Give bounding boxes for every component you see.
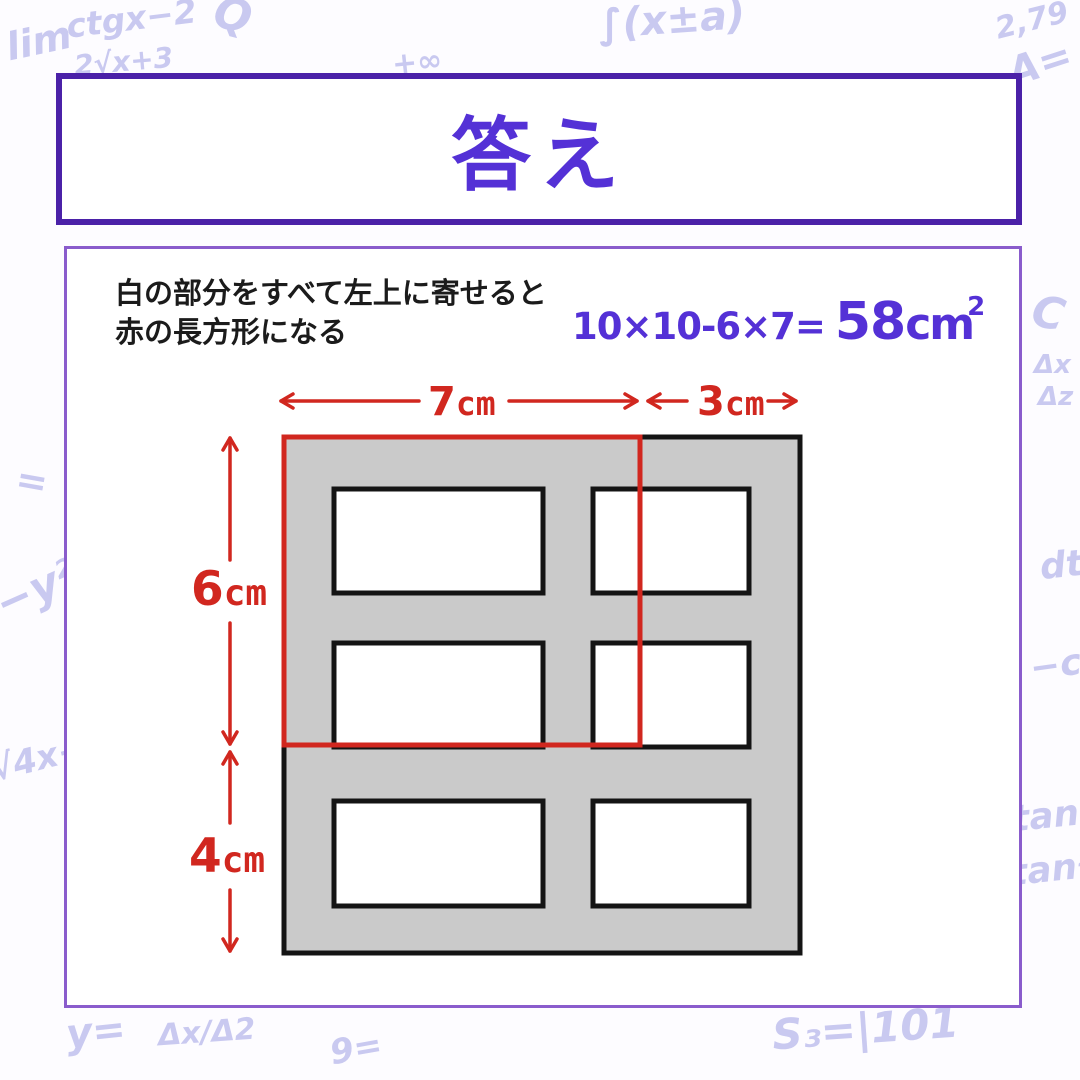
background-scribble: = <box>13 460 51 503</box>
background-scribble: S₃=|101 <box>771 1002 960 1057</box>
formula-expression: 10×10-6×7= <box>572 305 825 348</box>
background-scribble: Δx <box>1034 352 1071 378</box>
dim-label-4cm: 4cm <box>189 829 265 884</box>
dim-label-7cm: 7cm <box>428 379 496 425</box>
explanation-line-2: 赤の長方形になる <box>115 313 547 352</box>
background-scribble: Q <box>209 0 256 42</box>
formula: 10×10-6×7= 58 cm 2 <box>572 292 985 352</box>
explanation-line-1: 白の部分をすべて左上に寄せると <box>115 274 547 313</box>
background-scribble: ctgx−2 <box>64 0 198 43</box>
formula-result-exponent: 2 <box>967 292 985 322</box>
dim-label-3cm: 3cm <box>697 379 765 425</box>
background-scribble: 9= <box>327 1028 384 1071</box>
page-title: 答え <box>451 91 627 207</box>
background-scribble: C <box>1028 289 1069 339</box>
formula-result-value: 58 <box>835 292 905 352</box>
white-hole <box>334 489 543 593</box>
white-hole <box>593 643 749 747</box>
background-scribble: y= <box>64 1009 127 1055</box>
background-scribble: 2,79 <box>992 0 1071 45</box>
diagram: 7cm 3cm 6cm 4cm <box>150 378 850 978</box>
dim-label-6cm: 6cm <box>191 562 267 617</box>
white-hole <box>593 489 749 593</box>
background-scribble: −c <box>1028 645 1080 688</box>
explanation-text: 白の部分をすべて左上に寄せると 赤の長方形になる <box>115 274 547 352</box>
formula-result-unit: cm <box>905 299 973 350</box>
background-scribble: Δz <box>1038 384 1073 410</box>
white-hole <box>593 801 749 906</box>
white-hole <box>334 801 543 906</box>
background-scribble: Δx/Δ2 <box>157 1015 256 1052</box>
background-scribble: ∫(x±a) <box>597 0 747 45</box>
background-scribble: lim <box>3 16 75 67</box>
white-hole <box>334 643 543 747</box>
background-scribble: dt <box>1038 546 1080 586</box>
answer-header: 答え <box>56 73 1022 225</box>
answer-card: limctgx−22√x+3Q+∞∫(x±a)2,79A=CΔxΔzdt−cta… <box>0 0 1080 1080</box>
